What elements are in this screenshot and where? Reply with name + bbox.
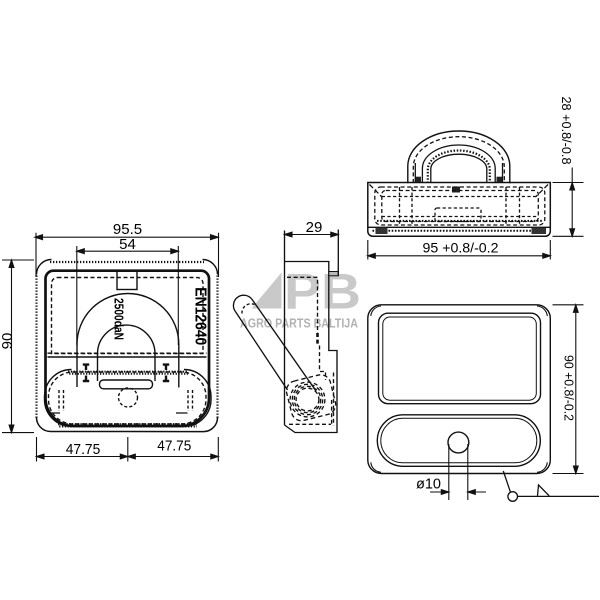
svg-text:95 +0.8/-0.2: 95 +0.8/-0.2 [423, 239, 499, 255]
svg-text:47.75: 47.75 [157, 438, 191, 455]
svg-text:47.75: 47.75 [66, 441, 101, 458]
svg-text:AGRO PARTS BALTIJA: AGRO PARTS BALTIJA [240, 317, 358, 331]
svg-text:54: 54 [119, 236, 136, 253]
svg-text:2500daN: 2500daN [112, 298, 127, 340]
svg-text:28 +0.8/-0.8: 28 +0.8/-0.8 [559, 97, 574, 165]
svg-text:29: 29 [306, 219, 323, 236]
svg-text:ø10: ø10 [416, 477, 441, 493]
svg-text:90: 90 [0, 333, 16, 350]
svg-text:90 +0.8/-0.2: 90 +0.8/-0.2 [562, 355, 577, 421]
svg-text:PB: PB [284, 264, 361, 320]
svg-text:EN12640: EN12640 [191, 287, 208, 345]
